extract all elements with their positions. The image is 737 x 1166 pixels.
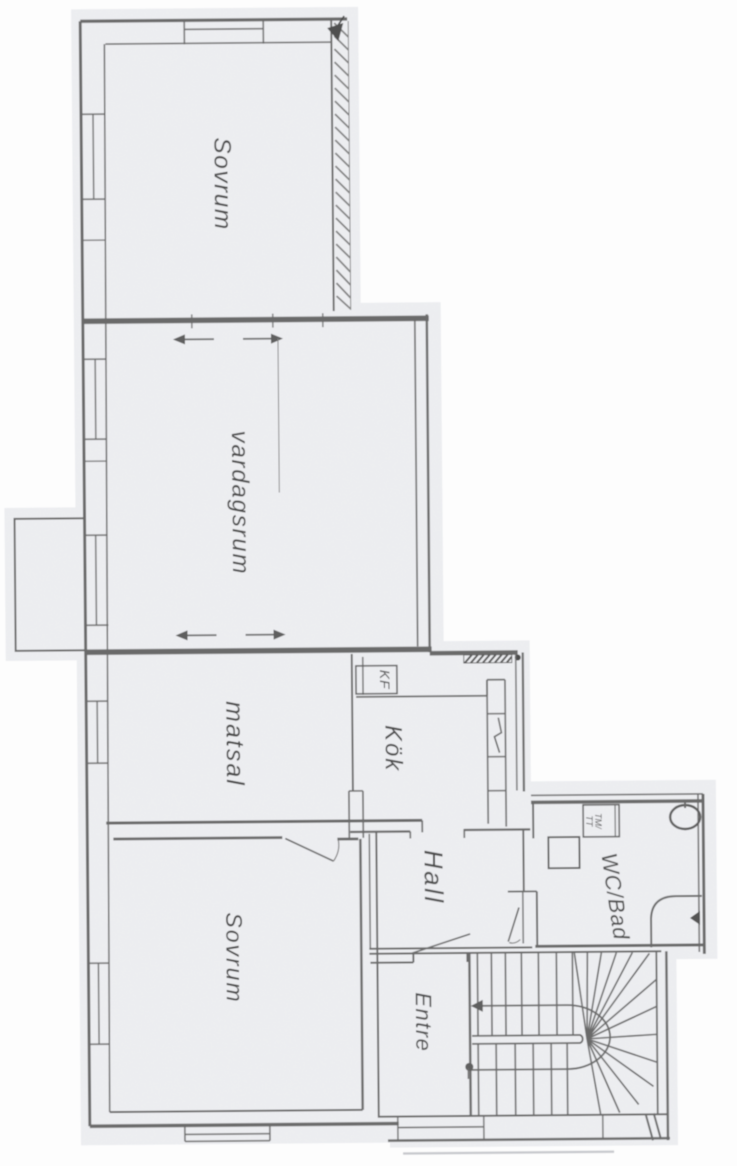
svg-text:Sovrum: Sovrum	[221, 912, 248, 1003]
svg-text:matsal: matsal	[220, 701, 249, 787]
svg-text:vardagsrum: vardagsrum	[226, 430, 254, 575]
svg-text:Entre: Entre	[411, 992, 437, 1052]
svg-text:KF: KF	[377, 670, 393, 690]
svg-text:Hall: Hall	[418, 850, 448, 905]
svg-text:Kök: Kök	[379, 725, 406, 773]
svg-text:Sovrum: Sovrum	[208, 137, 236, 231]
